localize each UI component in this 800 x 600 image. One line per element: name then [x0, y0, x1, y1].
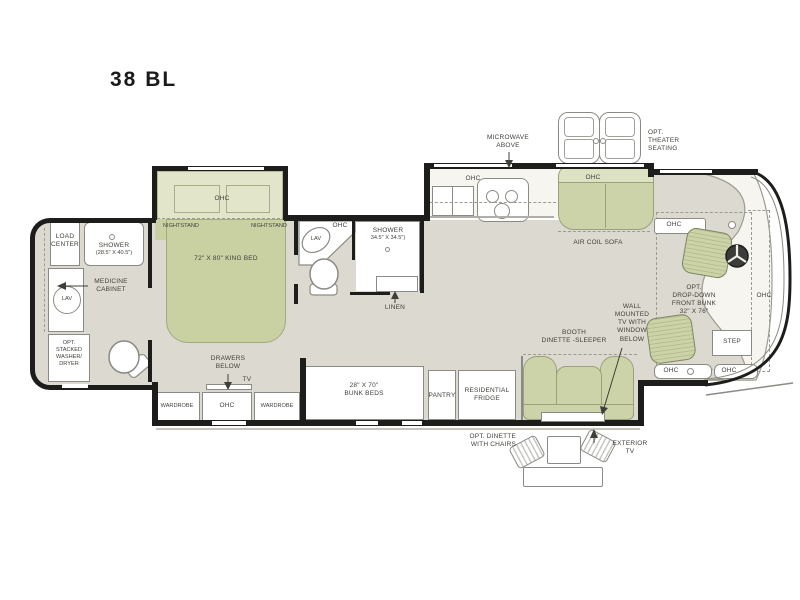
exterior-tv-arrow-icon: [590, 429, 598, 443]
rear-shower-dims-label: (28.5" X 40.5"): [80, 250, 148, 257]
mid-lav-label: LAV: [305, 236, 327, 243]
rear-shower-label: SHOWER: [84, 242, 144, 250]
theater-seating-label: OPT. THEATER SEATING: [648, 129, 694, 153]
washer-dryer-label: OPT. STACKED WASHER/ DRYER: [48, 340, 90, 368]
front-cap-inner: [707, 177, 784, 379]
front-ohc-top-label: OHC: [660, 221, 688, 229]
nightstand-left-label: NIGHTSTAND: [157, 223, 205, 230]
front-ohc-right-label: OHC: [750, 292, 778, 300]
linen-label: LINEN: [377, 304, 413, 312]
medicine-cabinet-label: MEDICINE CABINET: [88, 278, 134, 294]
sofa-ohc-label: OHC: [579, 174, 607, 182]
front-ohc-bl-label: OHC: [658, 367, 684, 375]
mid-shower-label: SHOWER: [366, 227, 410, 235]
entry-door-swing: [706, 383, 793, 395]
drawers-arrow-icon: [224, 374, 232, 390]
exterior-tv-label: EXTERIOR TV: [612, 440, 648, 456]
linen-arrow-icon: [391, 291, 399, 303]
rv-floorplan: 38 BL: [0, 0, 800, 600]
mid-bath-ohc-label: OHC: [326, 222, 354, 230]
wardrobe-right-label: WARDROBE: [255, 403, 299, 410]
front-ohc-br-label: OHC: [716, 367, 742, 375]
bedroom-ohc-label: OHC: [207, 195, 237, 203]
medicine-cabinet-arrow-icon: [57, 282, 88, 290]
pantry-label: PANTRY: [428, 392, 456, 400]
microwave-arrow-icon: [505, 152, 513, 168]
wall-tv-pointer-icon: [600, 348, 622, 415]
fridge-label: RESIDENTIAL FRIDGE: [459, 387, 515, 403]
steering-wheel-icon: [726, 245, 748, 267]
king-bed-label: 72" X 80" KING BED: [166, 255, 286, 263]
wardrobe-left-label: WARDROBE: [155, 403, 199, 410]
bunk-beds-label: 28" X 70" BUNK BEDS: [310, 382, 418, 398]
nightstand-right-label: NIGHTSTAND: [243, 223, 295, 230]
wall-tv-label: WALL MOUNTED TV WITH WINDOW BELOW: [606, 303, 658, 344]
microwave-label: MICROWAVE ABOVE: [478, 134, 538, 150]
bedroom-tv-label: TV: [240, 376, 254, 384]
rear-lav-label: LAV: [54, 296, 80, 303]
dresser-ohc-label: OHC: [213, 402, 241, 410]
booth-dinette-label: BOOTH DINETTE -SLEEPER: [534, 329, 614, 345]
kitchen-ohc-label: OHC: [460, 175, 486, 183]
floorplan-title: 38 BL: [110, 68, 177, 92]
air-coil-sofa-label: AIR COIL SOFA: [562, 239, 634, 247]
load-center-label: LOAD CENTER: [50, 233, 80, 249]
opt-dinette-label: OPT. DINETTE WITH CHAIRS: [460, 433, 516, 449]
drawers-below-label: DRAWERS BELOW: [202, 355, 254, 371]
step-label: STEP: [714, 338, 750, 346]
front-cap-outer: [705, 172, 790, 385]
mid-shower-dims-label: 34.5" X 34.5"): [358, 235, 418, 242]
front-bunk-label: OPT. DROP-DOWN FRONT BUNK 32" X 76": [656, 284, 732, 317]
